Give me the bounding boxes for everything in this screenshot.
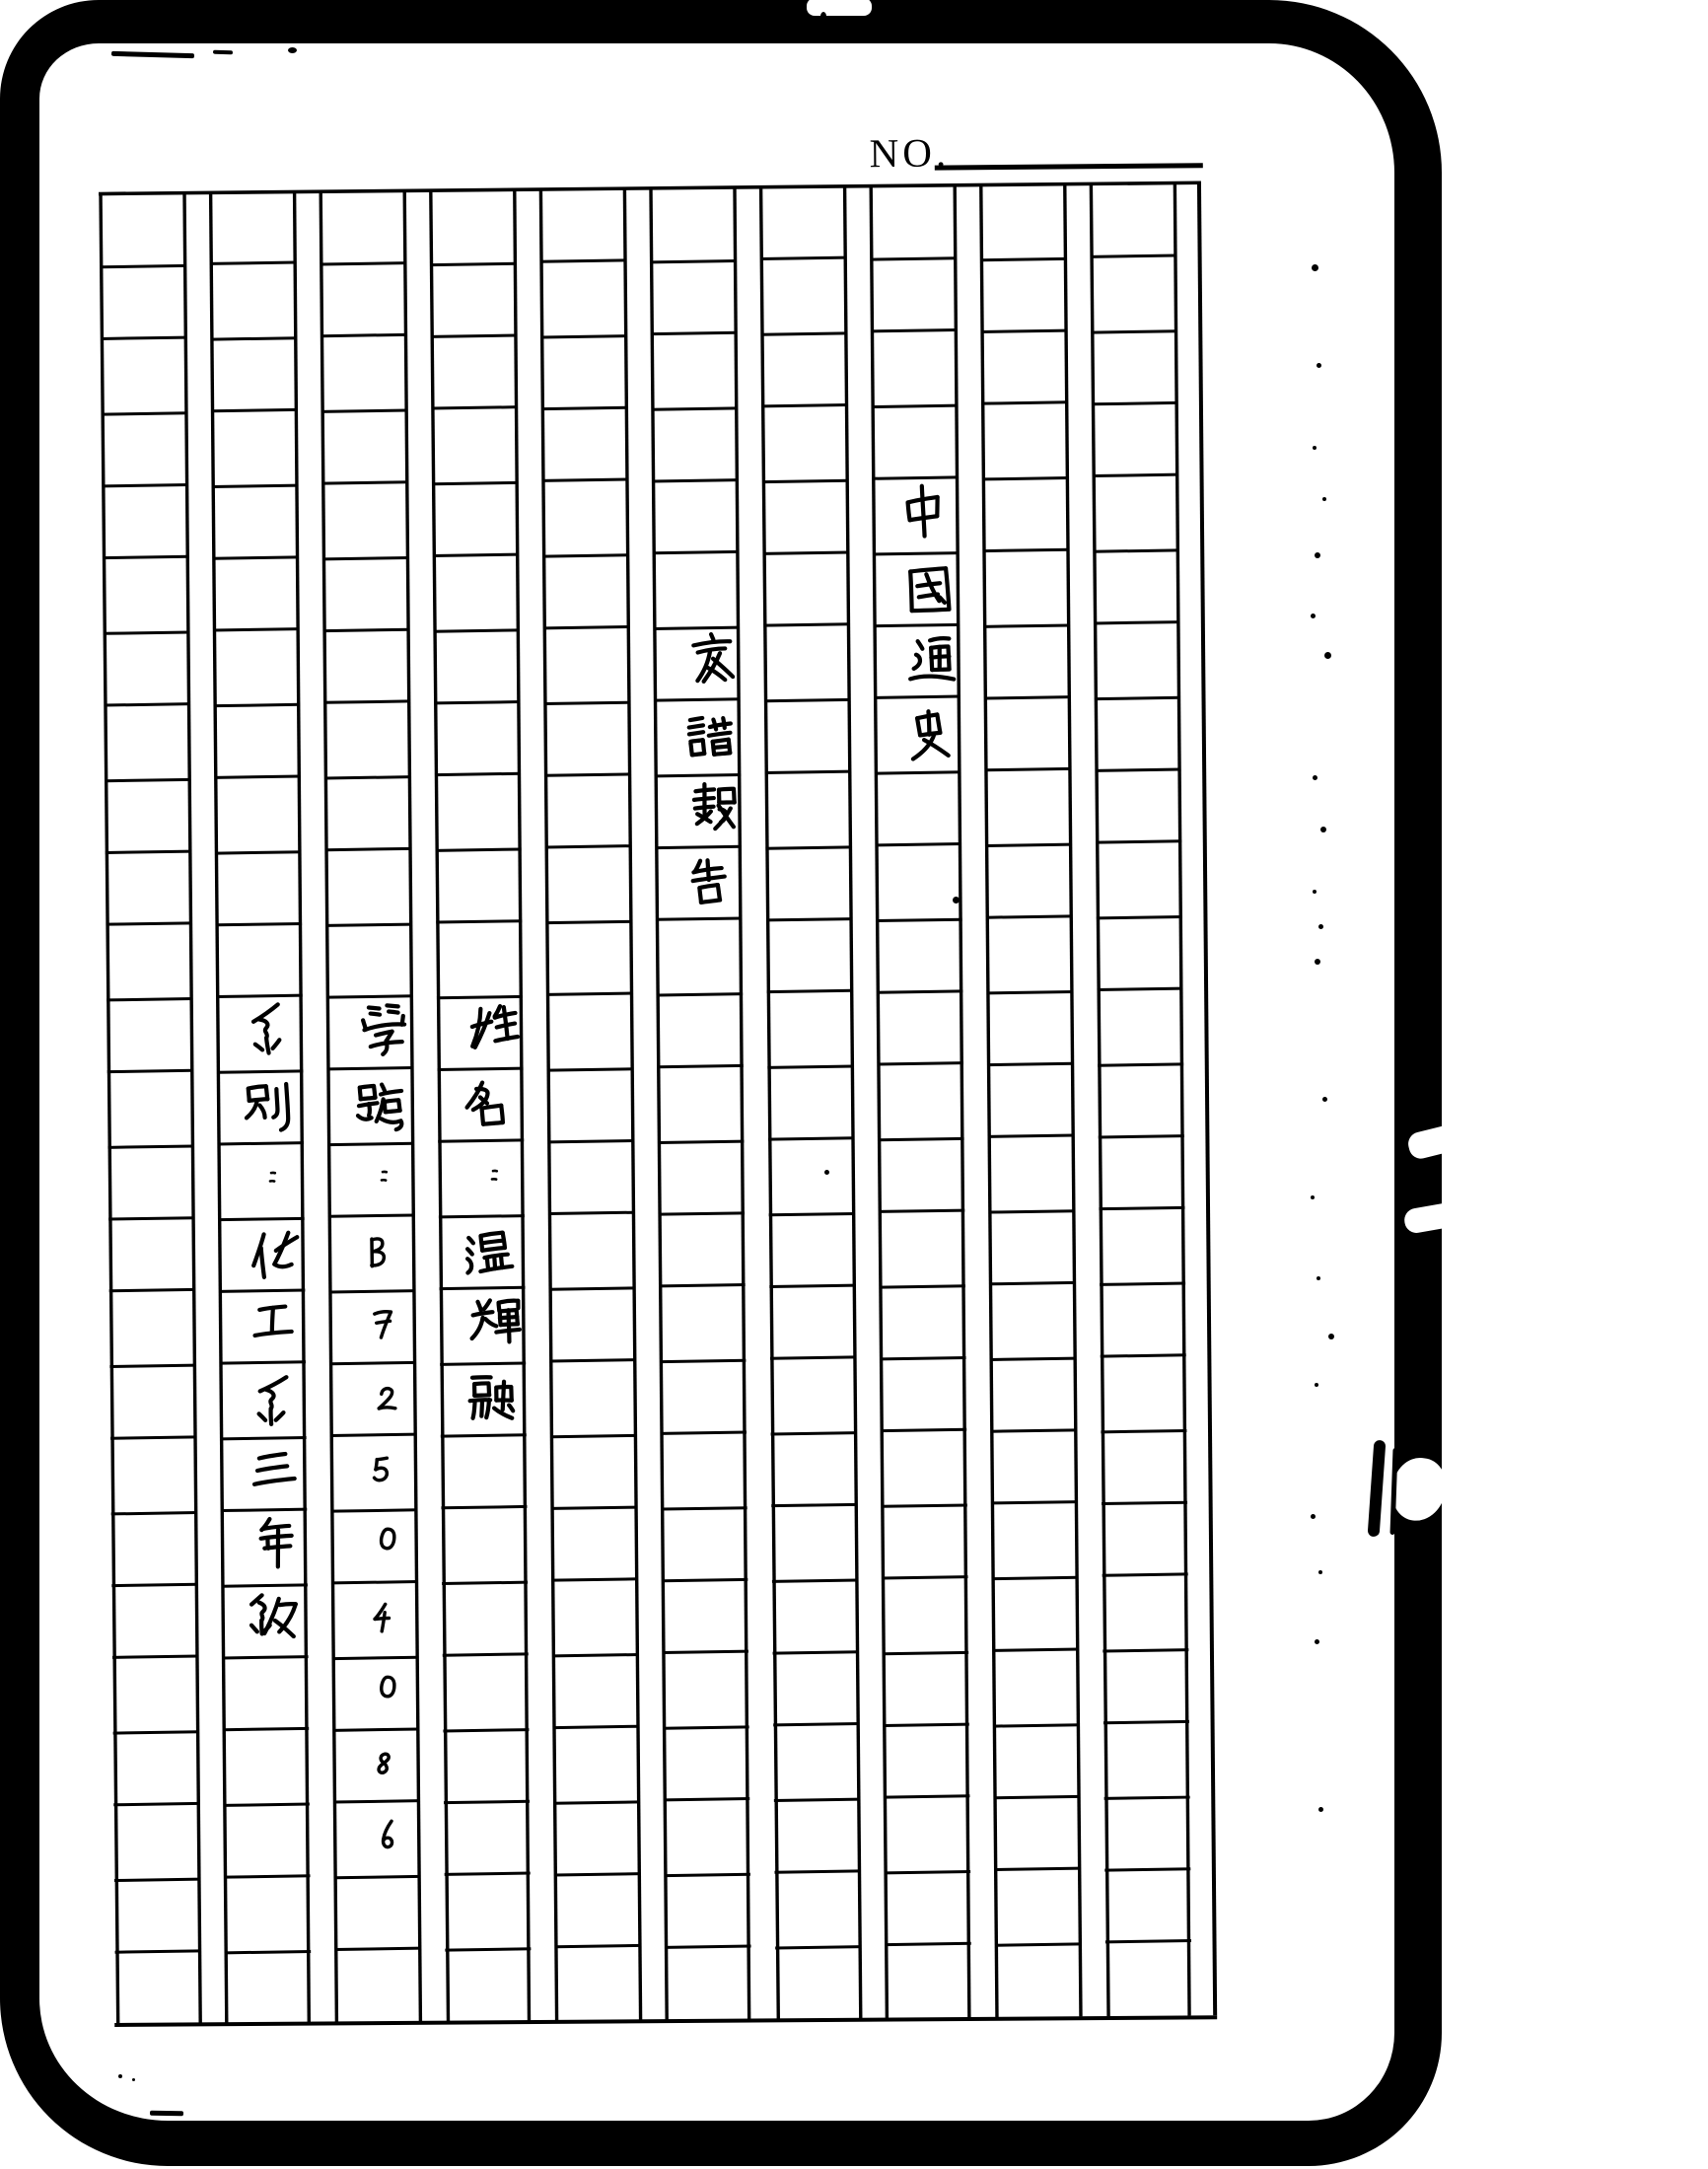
- scan-border: [0, 0, 1442, 2166]
- scanned-page: NO.: [0, 0, 1708, 2169]
